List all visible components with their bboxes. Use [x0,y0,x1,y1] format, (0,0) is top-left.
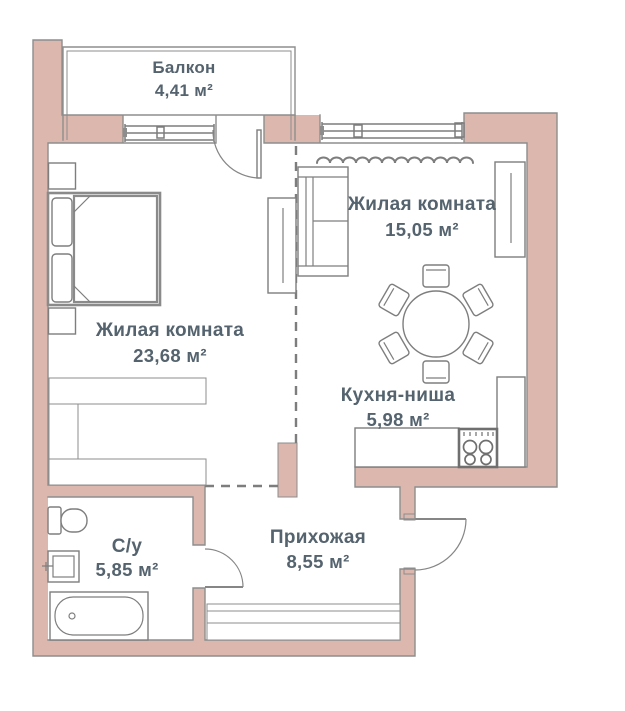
room-label-living-small: Жилая комната [347,194,496,215]
room-area-living-large: 23,68 м² [133,345,207,366]
toilet-icon [48,507,87,534]
bathtub-icon [50,592,148,640]
radiator-squiggle-icon [317,158,473,164]
nightstand-icon [49,163,76,189]
bathroom-door [205,549,243,587]
room-area-bathroom: 5,85 м² [95,559,158,580]
room-area-hallway: 8,55 м² [286,551,349,572]
chair-icon [423,361,449,383]
stove-icon [459,429,497,467]
partition-dashed-lines [205,146,296,486]
room-label-balcony: Балкон [152,58,215,77]
room-label-kitchen: Кухня-ниша [341,385,456,406]
room-area-kitchen: 5,98 м² [366,409,429,430]
room-area-living-small: 15,05 м² [385,219,459,240]
sink-icon [42,551,79,582]
tv-stand-icon [268,198,296,293]
nightstand-icon [49,308,76,334]
window-living-room-large [123,124,214,142]
room-label-living-large: Жилая комната [95,320,244,341]
room-label-hallway: Прихожая [270,527,366,548]
balcony-door [213,130,261,178]
floor-plan: Балкон 4,41 м² Жилая комната 15,05 м² Жи… [0,0,625,711]
bed-icon [48,193,160,305]
wardrobe-icon [495,162,525,257]
window-living-room-small [320,122,464,140]
sofa-icon [298,167,348,276]
hallway-wardrobe-icon [207,604,400,640]
floor-plan-canvas: Балкон 4,41 м² Жилая комната 15,05 м² Жи… [0,0,625,711]
dining-table-icon [403,291,469,357]
chair-icon [423,265,449,287]
room-area-balcony: 4,41 м² [155,81,213,100]
room-label-bathroom: С/у [112,536,143,557]
entrance-door [404,514,466,574]
wardrobe-hatched-icon [49,378,206,485]
